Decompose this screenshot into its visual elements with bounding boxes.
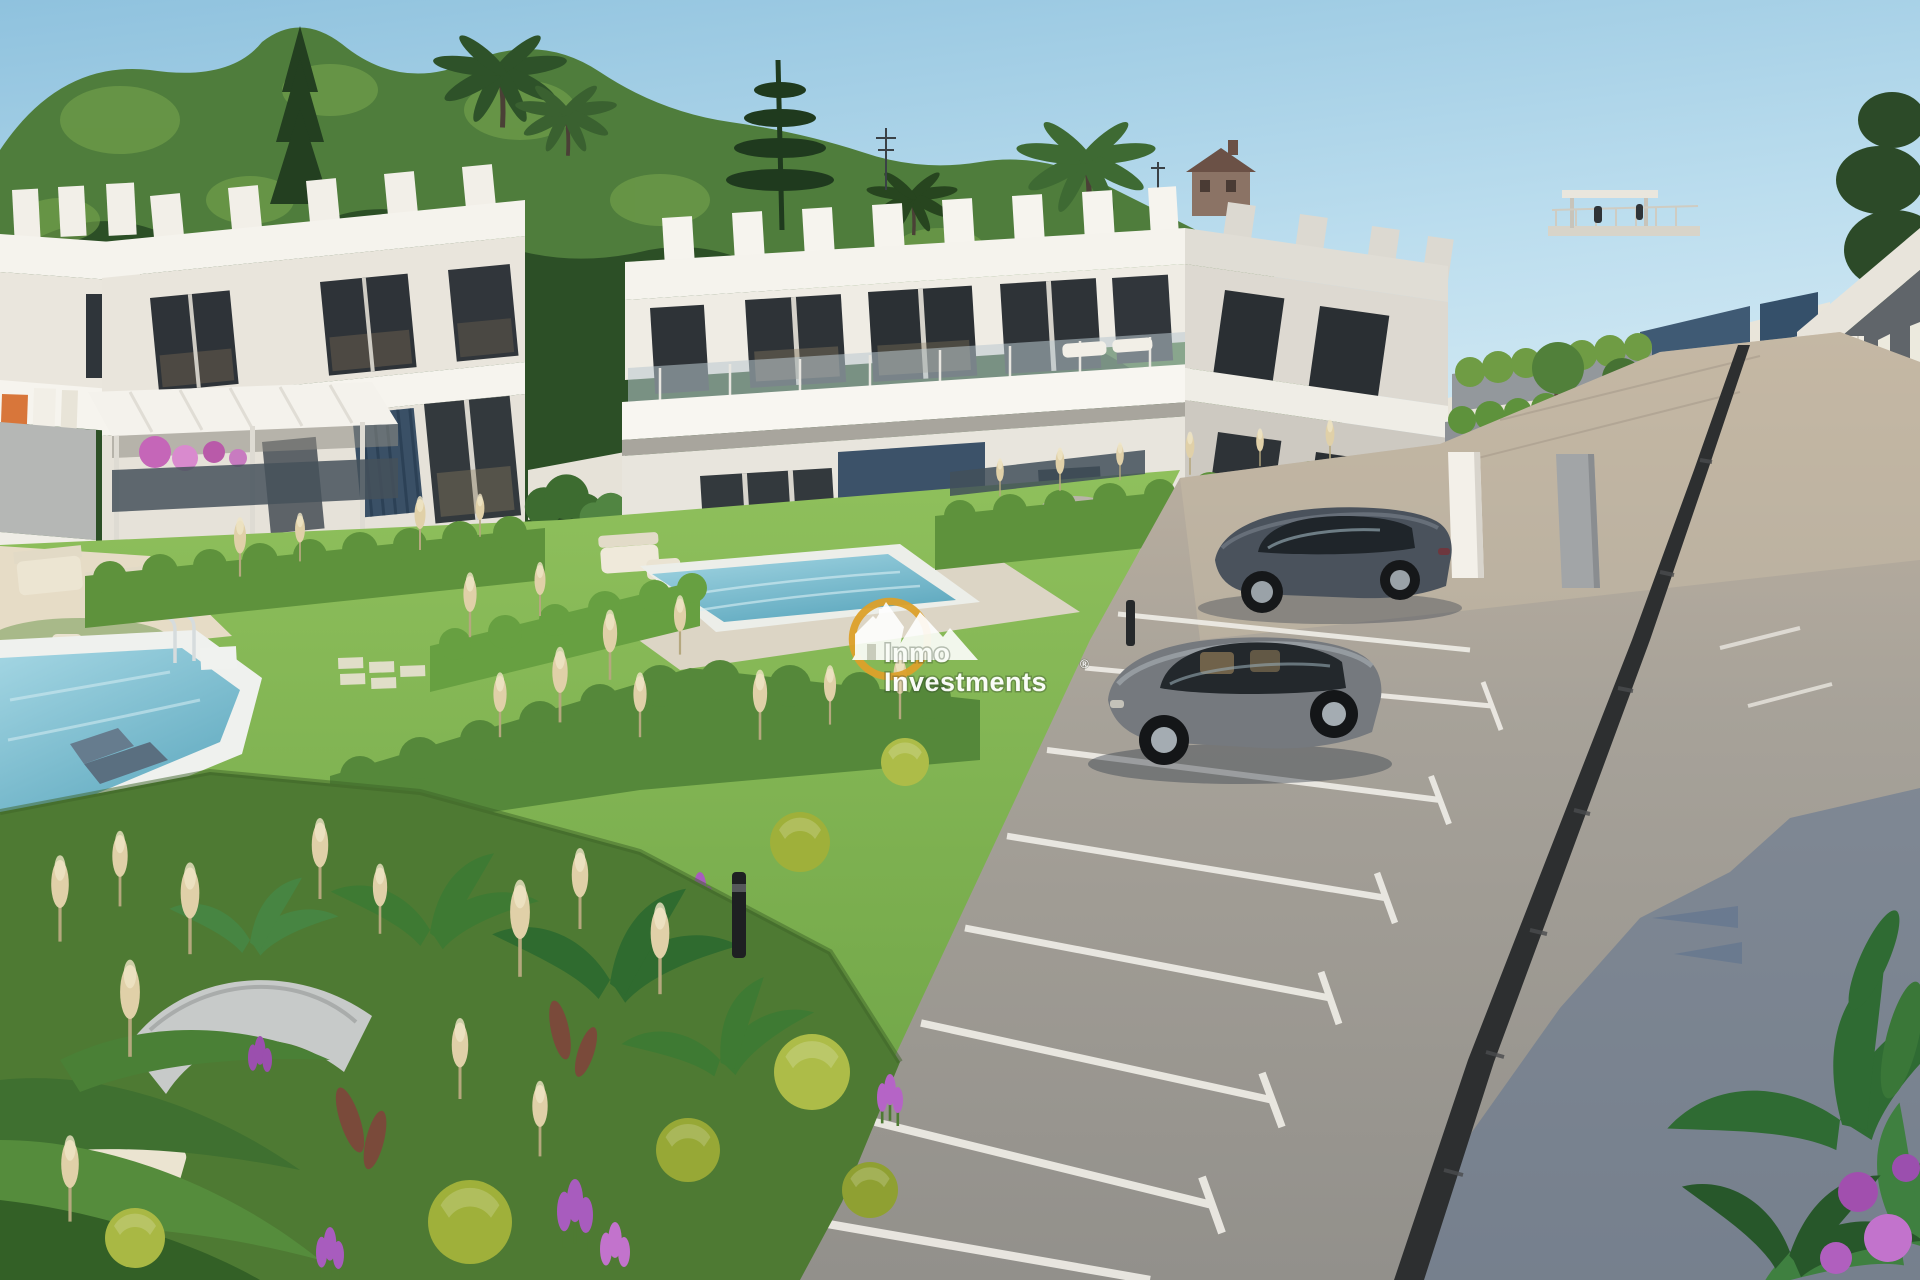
- gate-pillar-grey: [1556, 454, 1600, 588]
- lower-balcony-panel: [0, 422, 96, 540]
- garden-topiary: [770, 812, 830, 872]
- watermark-line2: Investments: [884, 667, 1047, 697]
- pool-steps: [200, 646, 237, 670]
- roof-parapet-blocks: [12, 183, 137, 240]
- watermark-line1: Inmo: [884, 638, 951, 668]
- property-render-image: Inmo Investments ®: [0, 0, 1920, 1280]
- glass-doors: [424, 396, 521, 524]
- watermark-registered-mark: ®: [1080, 657, 1089, 671]
- bollard-light-small: [1126, 600, 1135, 646]
- gate-pillar-white: [1448, 452, 1484, 578]
